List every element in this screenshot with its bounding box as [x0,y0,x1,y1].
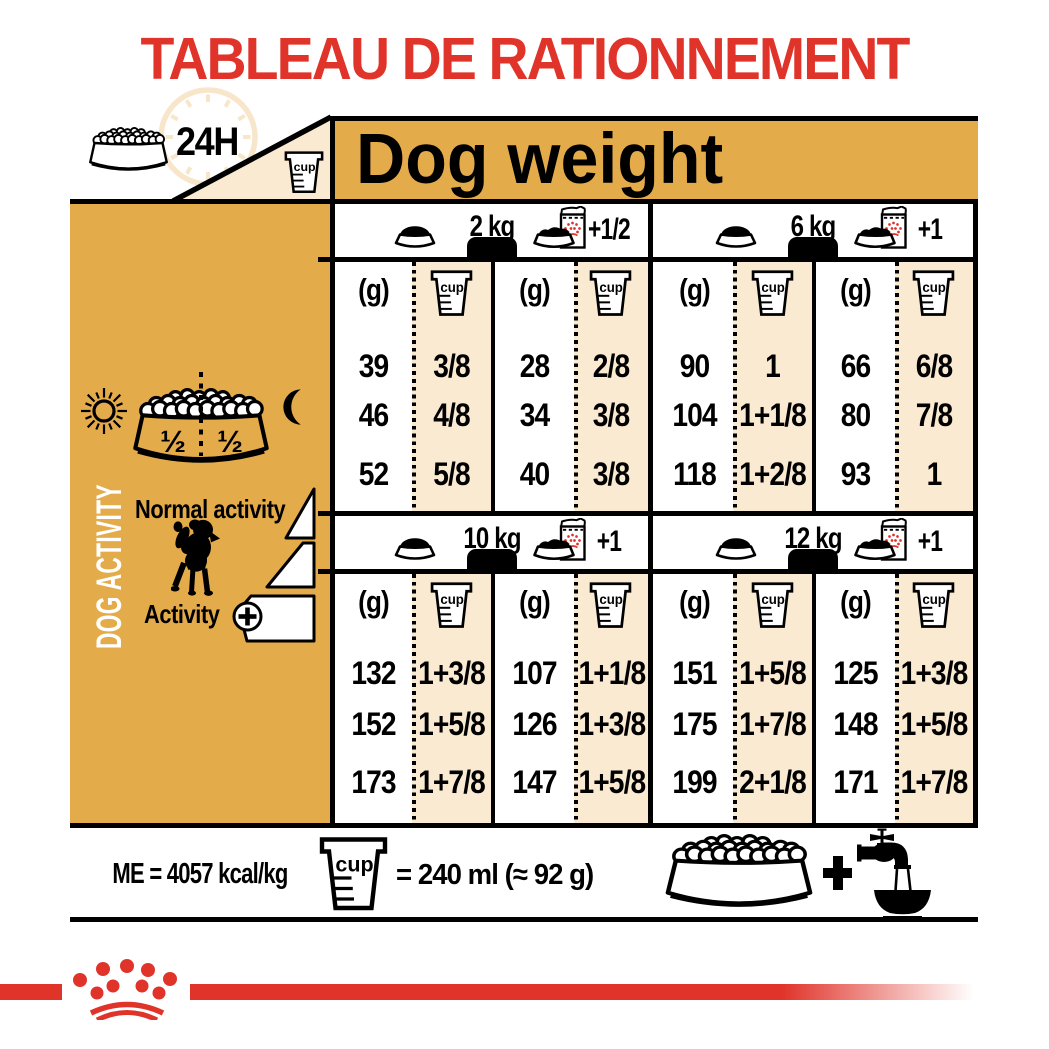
svg-text:cup: cup [294,160,316,174]
svg-text:cup: cup [335,853,373,877]
svg-text:cup: cup [599,280,623,295]
svg-text:cup: cup [440,280,464,295]
svg-text:cup: cup [761,592,785,607]
svg-text:cup: cup [922,592,946,607]
svg-text:cup: cup [761,280,785,295]
svg-text:cup: cup [922,280,946,295]
svg-text:cup: cup [440,592,464,607]
svg-text:cup: cup [599,592,623,607]
